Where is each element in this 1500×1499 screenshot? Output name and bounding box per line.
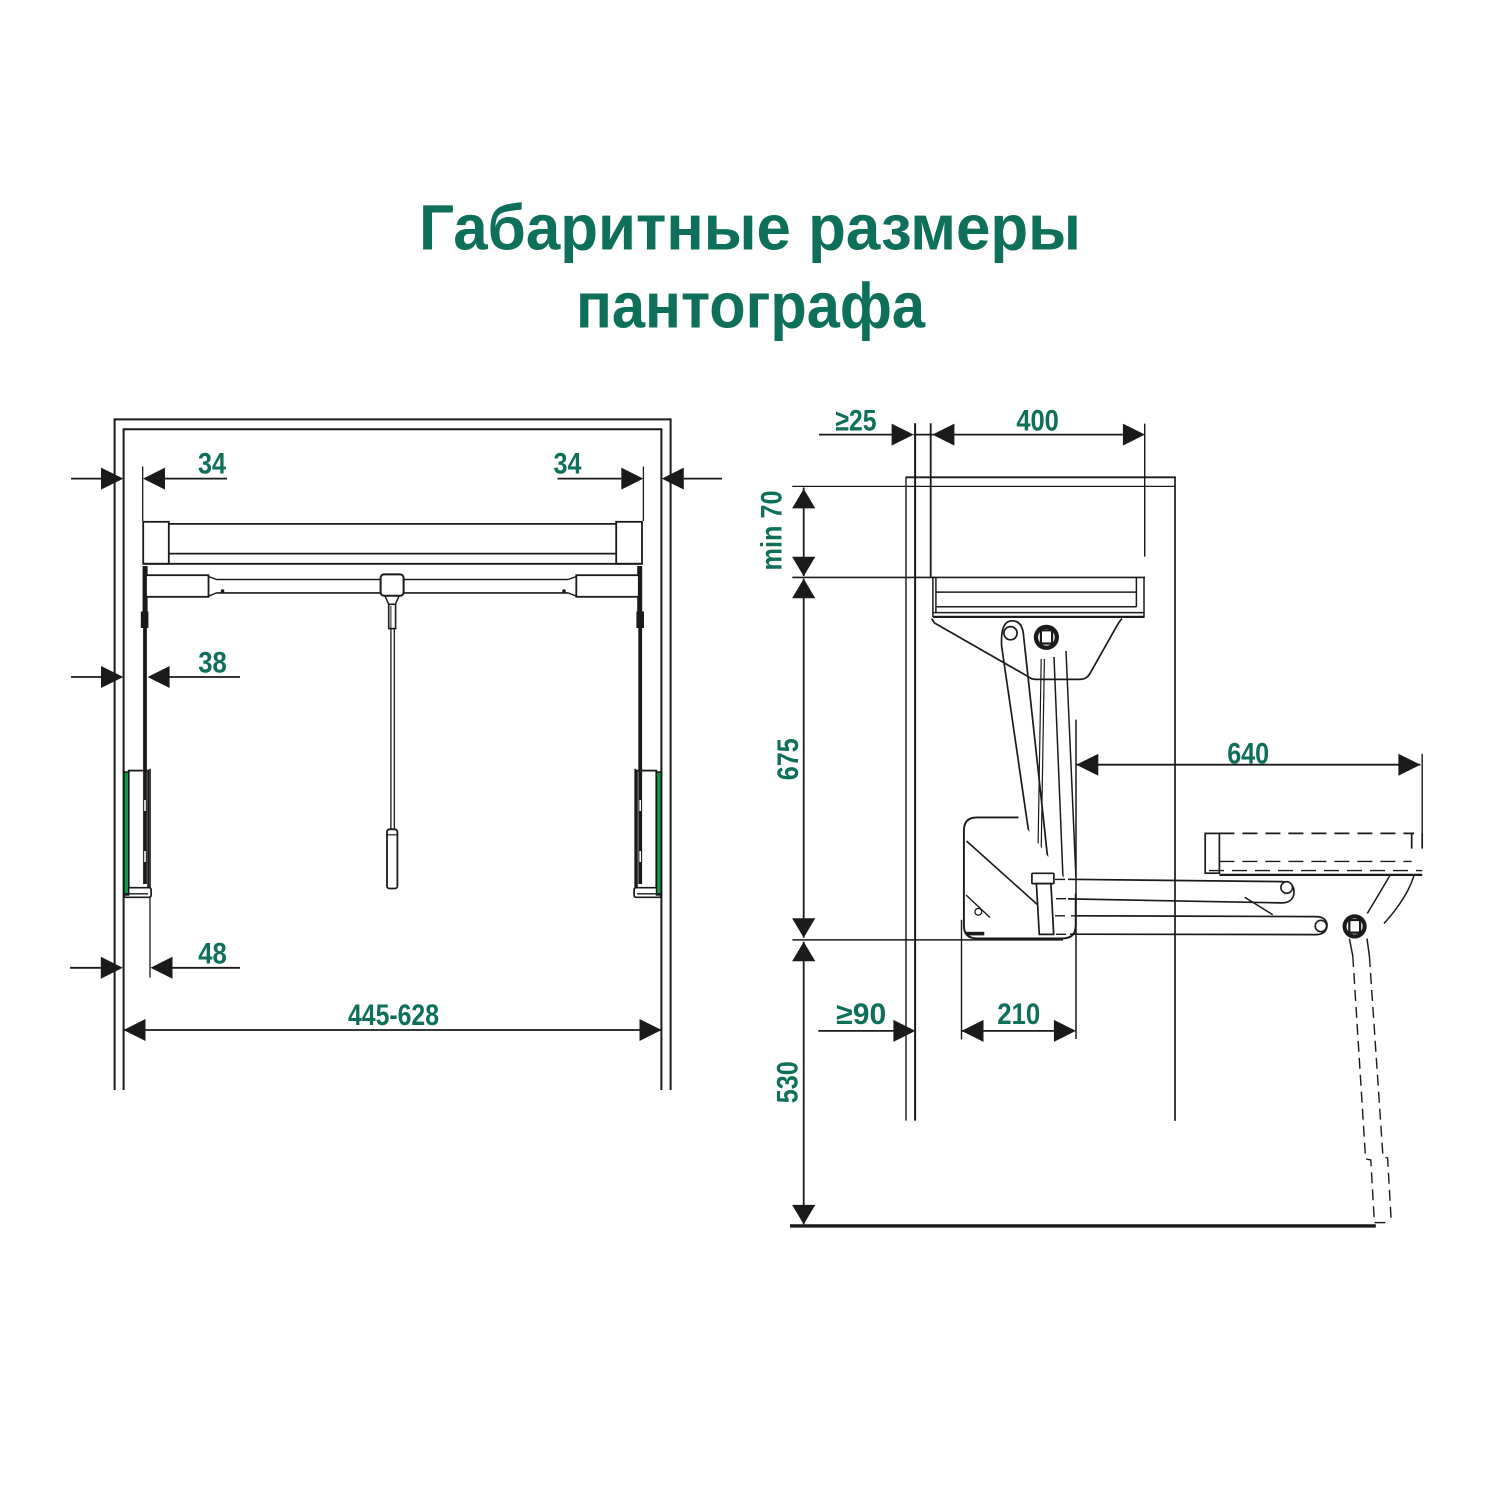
svg-text:530: 530 — [772, 1061, 805, 1103]
svg-text:445-628: 445-628 — [348, 999, 439, 1032]
svg-text:210: 210 — [997, 998, 1040, 1031]
svg-text:400: 400 — [1016, 405, 1059, 438]
svg-text:48: 48 — [198, 938, 227, 971]
svg-text:min 70: min 70 — [756, 491, 789, 571]
svg-text:34: 34 — [198, 448, 226, 481]
svg-text:640: 640 — [1227, 738, 1269, 771]
svg-text:38: 38 — [198, 647, 227, 680]
svg-text:Габаритные размеры: Габаритные размеры — [419, 192, 1081, 264]
svg-text:пантографа: пантографа — [576, 270, 925, 342]
svg-text:≥90: ≥90 — [836, 998, 886, 1031]
svg-text:34: 34 — [554, 448, 582, 481]
svg-text:675: 675 — [772, 738, 805, 780]
svg-text:≥25: ≥25 — [836, 405, 877, 438]
